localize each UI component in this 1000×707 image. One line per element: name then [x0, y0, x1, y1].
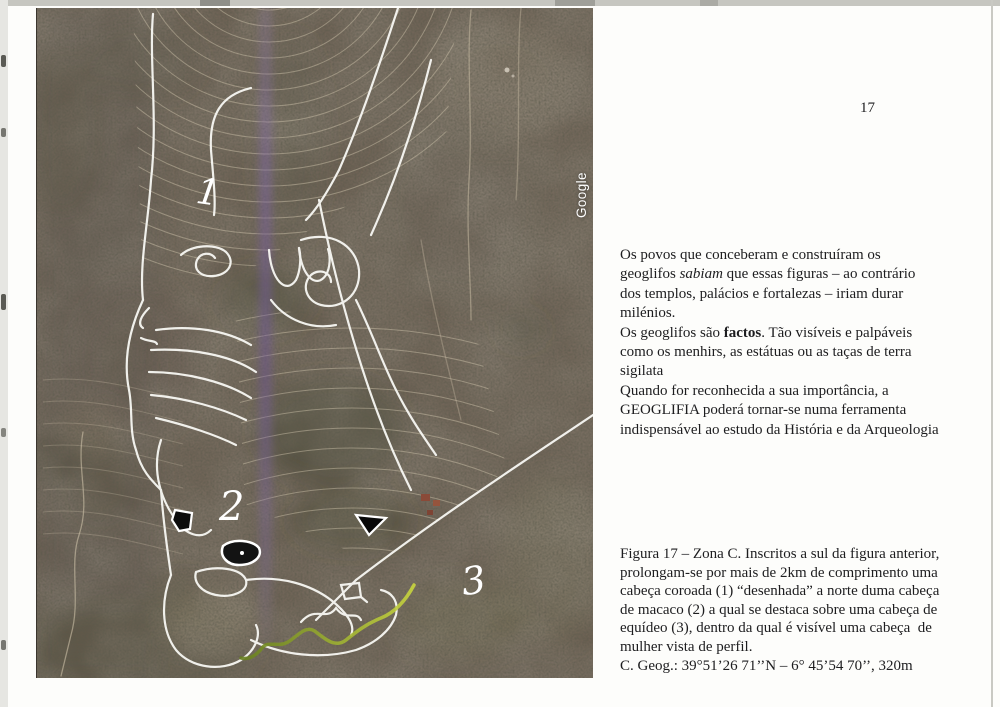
satellite-photo: 1 2 3	[37, 8, 593, 678]
google-watermark: Google	[574, 172, 589, 218]
body-run: geoglifos	[620, 266, 680, 282]
body-run: . Tão visíveis e palpáveis	[761, 325, 912, 341]
scan-smudge	[200, 0, 230, 6]
body-line: milénios.	[620, 304, 1000, 323]
body-line: Os povos que conceberam e construíram os	[620, 246, 1000, 265]
scan-edge-left	[0, 0, 8, 707]
caption-line: prolongam-se por mais de 2km de comprime…	[620, 564, 1000, 583]
scan-smudge	[1, 128, 6, 137]
geoglyph-label-monkey-head: 2	[218, 484, 244, 530]
scan-edge-top	[0, 0, 1000, 6]
caption-line: equídeo (3), dentro da qual é visível um…	[620, 619, 1000, 638]
satellite-figure: 1 2 3 Google	[36, 8, 593, 678]
body-line: Quando for reconhecida a sua importância…	[620, 382, 1000, 401]
body-text: Os povos que conceberam e construíram os…	[620, 246, 1000, 440]
body-line: como os menhirs, as estátuas ou as taças…	[620, 343, 1000, 362]
scan-smudge	[555, 0, 595, 6]
body-line: geoglifos sabiam que essas figuras – ao …	[620, 265, 1000, 284]
scan-smudge	[700, 0, 718, 6]
scan-smudge	[1, 428, 6, 437]
caption-line: cabeça coroada (1) “desenhada” a norte d…	[620, 582, 1000, 601]
scanned-page: 17	[0, 0, 1000, 707]
figure-caption: Figura 17 – Zona C. Inscritos a sul da f…	[620, 545, 1000, 675]
caption-line: mulher vista de perfil.	[620, 638, 1000, 657]
scan-smudge	[1, 55, 6, 67]
terrain	[37, 8, 593, 678]
caption-coordinates: C. Geog.: 39°51’26 71’’N – 6° 45’54 70’’…	[620, 657, 1000, 676]
body-run: que essas figuras – ao contrário	[723, 266, 915, 282]
body-run-italic: sabiam	[680, 266, 723, 282]
body-line: Os geoglifos são factos. Tão visíveis e …	[620, 324, 1000, 343]
scan-smudge	[1, 294, 6, 310]
scan-smudge	[1, 640, 6, 650]
caption-line: de macaco (2) a qual se destaca sobre um…	[620, 601, 1000, 620]
body-run: Os geoglifos são	[620, 325, 724, 341]
page-number: 17	[860, 100, 875, 117]
body-line: GEOGLIFIA poderá tornar-se numa ferramen…	[620, 401, 1000, 420]
body-line: dos templos, palácios e fortalezas – iri…	[620, 285, 1000, 304]
body-line: indispensável ao estudo da História e da…	[620, 421, 1000, 440]
body-run-bold: factos	[724, 325, 762, 341]
body-line: sigilata	[620, 362, 1000, 381]
caption-line: Figura 17 – Zona C. Inscritos a sul da f…	[620, 545, 1000, 564]
